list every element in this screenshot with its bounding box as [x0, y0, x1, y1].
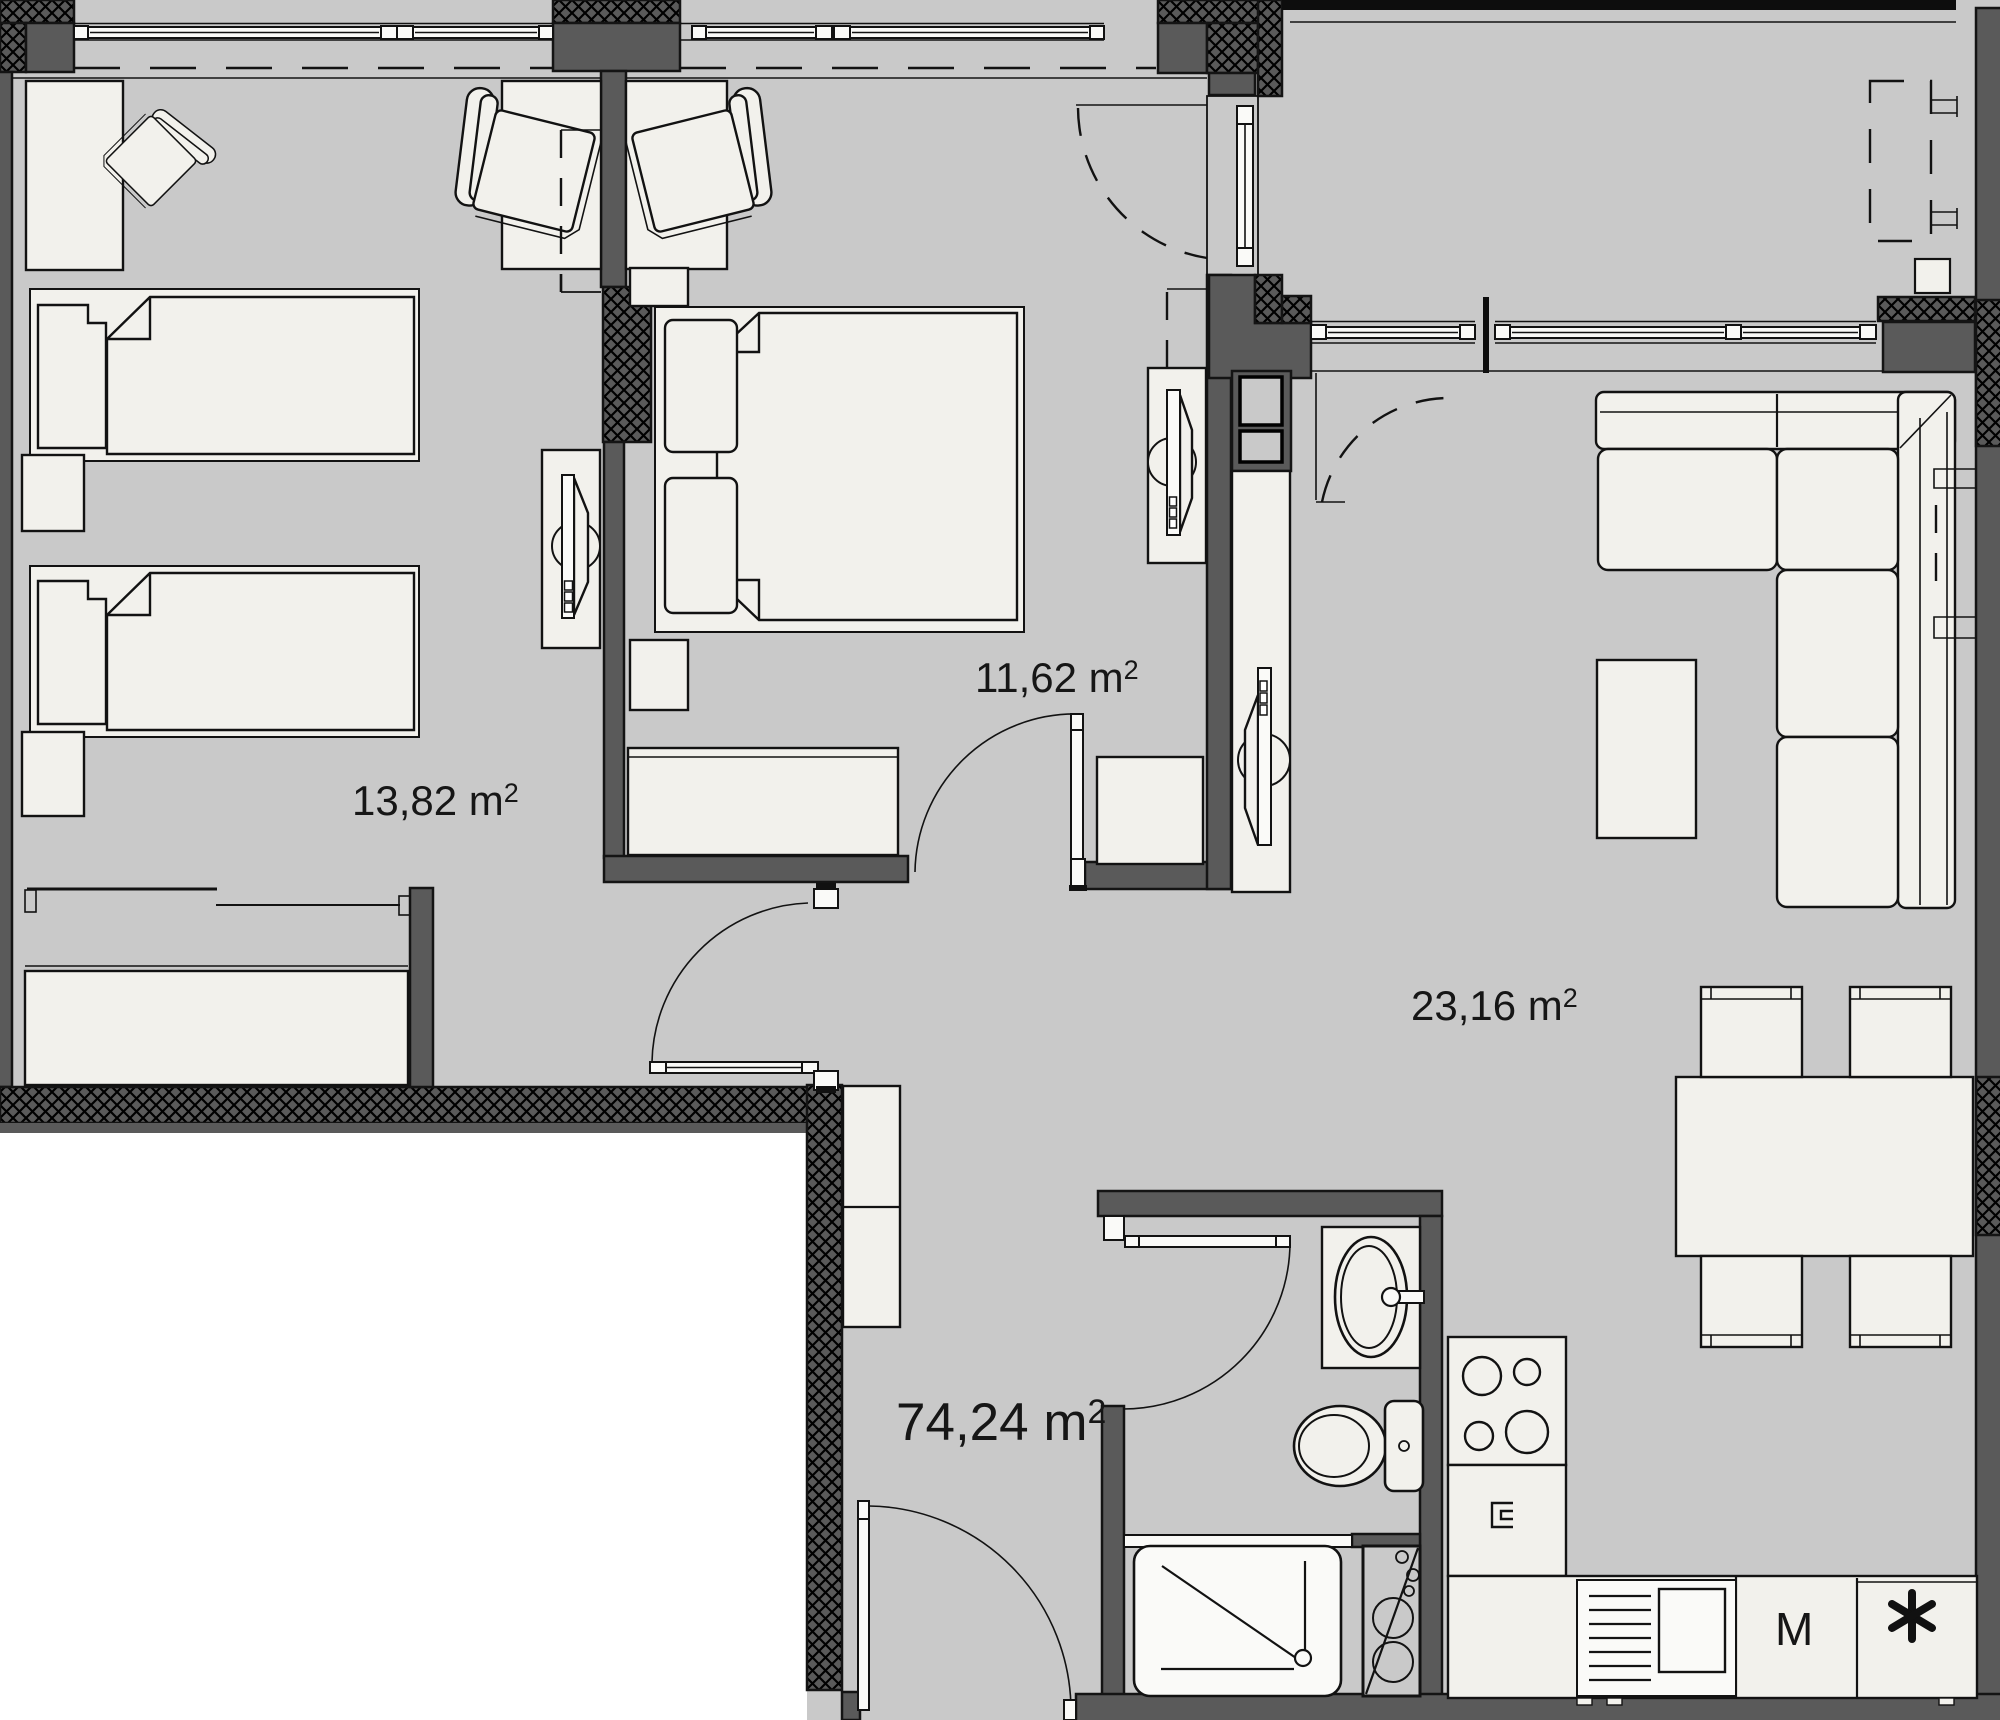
svg-text:23,16 m2: 23,16 m2 [1411, 982, 1578, 1029]
svg-text:M: M [1775, 1603, 1813, 1655]
svg-text:74,24 m2: 74,24 m2 [896, 1393, 1106, 1452]
svg-text:13,82 m2: 13,82 m2 [352, 777, 519, 824]
svg-text:11,62 m2: 11,62 m2 [975, 654, 1139, 701]
